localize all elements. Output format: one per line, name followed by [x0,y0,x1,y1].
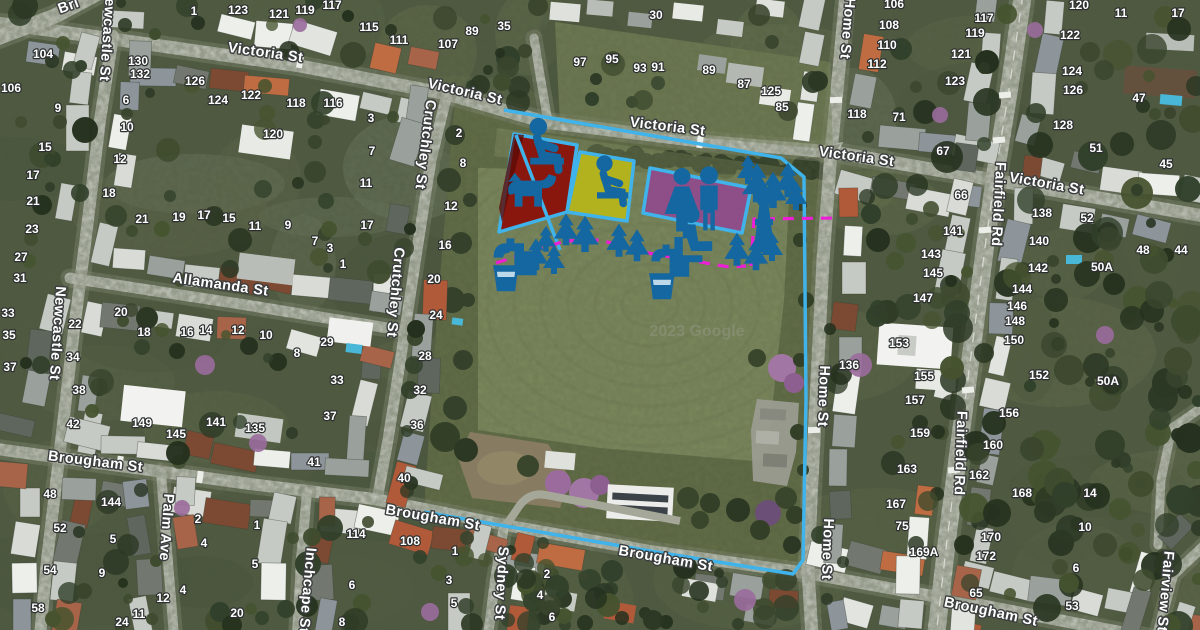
svg-text:21: 21 [135,212,149,226]
svg-text:7: 7 [312,234,319,248]
svg-text:71: 71 [892,110,906,124]
svg-text:30: 30 [649,8,663,22]
svg-text:20: 20 [114,305,128,319]
svg-text:17: 17 [197,208,211,222]
svg-text:106: 106 [884,0,904,11]
svg-text:5: 5 [110,532,117,546]
svg-text:143: 143 [921,247,941,261]
svg-text:11: 11 [249,219,262,233]
svg-text:17: 17 [360,218,374,232]
svg-text:163: 163 [897,462,917,476]
svg-text:33: 33 [1,306,15,320]
svg-text:24: 24 [429,308,443,322]
svg-text:40: 40 [397,471,411,485]
svg-text:108: 108 [400,534,420,548]
svg-text:12: 12 [444,199,458,213]
svg-text:44: 44 [1174,243,1188,257]
svg-text:149: 149 [132,416,152,430]
svg-text:6: 6 [1073,561,1080,575]
svg-text:147: 147 [913,291,933,305]
svg-text:35: 35 [497,19,511,33]
svg-text:124: 124 [1062,64,1082,78]
svg-text:11: 11 [133,607,146,621]
svg-text:11: 11 [360,176,373,190]
svg-text:21: 21 [26,194,40,208]
svg-text:153: 153 [889,336,909,350]
svg-text:8: 8 [460,156,467,170]
svg-text:169A: 169A [910,545,939,559]
svg-text:15: 15 [38,140,52,154]
svg-text:116: 116 [323,96,343,110]
svg-text:48: 48 [1136,243,1150,257]
svg-text:121: 121 [951,47,971,61]
svg-text:47: 47 [1132,91,1146,105]
svg-text:108: 108 [879,18,899,32]
svg-text:136: 136 [839,358,859,372]
svg-text:12: 12 [113,152,127,166]
svg-text:31: 31 [13,271,27,285]
svg-text:144: 144 [101,495,121,509]
svg-text:3: 3 [327,241,334,255]
svg-text:65: 65 [969,586,983,600]
svg-text:20: 20 [427,272,441,286]
svg-text:8: 8 [294,346,301,360]
svg-text:123: 123 [945,74,965,88]
svg-text:15: 15 [222,211,236,225]
svg-text:122: 122 [241,88,261,102]
svg-text:91: 91 [651,60,665,74]
svg-text:54: 54 [43,563,57,577]
svg-text:141: 141 [206,415,226,429]
svg-text:142: 142 [1028,261,1048,275]
svg-text:50A: 50A [1097,374,1119,388]
svg-text:157: 157 [905,393,925,407]
svg-text:35: 35 [2,328,16,342]
svg-text:110: 110 [877,38,897,52]
svg-text:123: 123 [228,3,248,17]
svg-text:140: 140 [1029,234,1049,248]
svg-text:107: 107 [438,37,458,51]
svg-text:48: 48 [43,487,57,501]
svg-text:172: 172 [976,549,996,563]
svg-text:114: 114 [346,527,366,541]
svg-text:34: 34 [66,350,80,364]
svg-text:115: 115 [359,20,379,34]
svg-text:8: 8 [339,615,346,629]
svg-text:Fairfield Rd: Fairfield Rd [951,411,970,496]
svg-text:145: 145 [923,266,943,280]
svg-text:10: 10 [120,120,134,134]
svg-text:132: 132 [130,67,150,81]
svg-text:89: 89 [702,63,716,77]
svg-text:104: 104 [33,47,53,61]
svg-text:4: 4 [201,536,208,550]
svg-text:9: 9 [285,218,292,232]
svg-text:159: 159 [910,426,930,440]
svg-text:42: 42 [66,417,80,431]
svg-text:148: 148 [1005,314,1025,328]
svg-text:29: 29 [320,335,334,349]
svg-text:135: 135 [245,421,265,435]
svg-text:24: 24 [115,615,129,629]
svg-text:1: 1 [452,544,459,558]
svg-text:28: 28 [418,349,432,363]
svg-text:167: 167 [886,497,906,511]
svg-text:4: 4 [180,583,187,597]
svg-text:6: 6 [123,93,130,107]
svg-text:2023 Google: 2023 Google [649,323,744,340]
svg-text:118: 118 [847,107,867,121]
svg-text:66: 66 [954,188,968,202]
svg-text:126: 126 [185,74,205,88]
svg-text:12: 12 [231,323,245,337]
svg-text:52: 52 [1080,211,1094,225]
svg-text:32: 32 [413,383,427,397]
svg-text:138: 138 [1032,206,1052,220]
svg-text:9: 9 [99,566,106,580]
svg-text:75: 75 [895,519,909,533]
svg-text:146: 146 [1007,299,1027,313]
svg-text:58: 58 [31,601,45,615]
svg-text:Home St: Home St [818,518,836,580]
svg-text:156: 156 [999,406,1019,420]
svg-text:14: 14 [199,323,213,337]
svg-text:37: 37 [323,409,337,423]
svg-text:85: 85 [775,100,789,114]
svg-text:9: 9 [55,101,62,115]
svg-text:144: 144 [1012,282,1032,296]
svg-text:2: 2 [456,126,463,140]
svg-text:50A: 50A [1091,260,1113,274]
svg-text:162: 162 [969,468,989,482]
svg-text:122: 122 [1060,28,1080,42]
svg-text:7: 7 [369,144,376,158]
svg-text:141: 141 [943,224,963,238]
svg-text:16: 16 [438,238,452,252]
svg-text:106: 106 [1,81,21,95]
svg-text:124: 124 [208,93,228,107]
svg-text:93: 93 [633,61,647,75]
svg-text:119: 119 [965,26,985,40]
svg-text:126: 126 [1063,83,1083,97]
svg-text:22: 22 [68,317,82,331]
svg-text:111: 111 [390,33,409,47]
svg-text:33: 33 [330,373,344,387]
svg-text:23: 23 [25,222,39,236]
svg-text:145: 145 [166,427,186,441]
svg-text:41: 41 [307,455,321,469]
svg-text:53: 53 [1065,599,1079,613]
svg-text:120: 120 [263,127,283,141]
svg-text:1: 1 [340,257,347,271]
svg-text:112: 112 [867,57,887,71]
svg-text:125: 125 [761,84,781,98]
svg-text:130: 130 [128,54,148,68]
svg-text:170: 170 [981,530,1001,544]
svg-text:155: 155 [914,369,934,383]
svg-text:18: 18 [137,325,151,339]
svg-text:14: 14 [1083,486,1097,500]
svg-text:119: 119 [295,3,315,17]
svg-text:17: 17 [1171,6,1185,20]
svg-text:1: 1 [254,518,261,532]
svg-text:4: 4 [537,588,544,602]
svg-text:38: 38 [72,383,86,397]
svg-text:19: 19 [172,210,186,224]
svg-text:168: 168 [1012,486,1032,500]
svg-text:20: 20 [230,606,244,620]
svg-text:11: 11 [1115,6,1128,20]
svg-text:37: 37 [3,360,17,374]
svg-text:51: 51 [1089,141,1103,155]
svg-text:152: 152 [1029,368,1049,382]
svg-text:18: 18 [102,186,116,200]
svg-text:10: 10 [1078,520,1092,534]
svg-text:45: 45 [1159,157,1173,171]
svg-text:6: 6 [349,578,356,592]
svg-text:118: 118 [286,96,306,110]
svg-text:97: 97 [573,55,587,69]
svg-text:5: 5 [252,557,259,571]
svg-text:1: 1 [191,4,198,18]
svg-text:27: 27 [14,250,28,264]
svg-text:6: 6 [549,610,556,624]
svg-text:160: 160 [983,438,1003,452]
svg-text:52: 52 [53,521,67,535]
svg-text:67: 67 [936,144,950,158]
svg-text:17: 17 [26,168,40,182]
svg-text:2: 2 [544,567,551,581]
svg-text:87: 87 [737,77,751,91]
svg-text:95: 95 [605,52,619,66]
svg-text:3: 3 [368,111,375,125]
svg-text:150: 150 [1004,333,1024,347]
svg-text:128: 128 [1053,118,1073,132]
svg-text:10: 10 [259,328,273,342]
svg-text:117: 117 [974,11,994,25]
svg-text:89: 89 [465,24,479,38]
svg-text:12: 12 [156,591,170,605]
svg-text:2: 2 [195,512,202,526]
svg-text:16: 16 [180,325,194,339]
svg-text:120: 120 [1069,0,1089,12]
svg-text:117: 117 [322,0,342,12]
svg-text:5: 5 [451,596,458,610]
svg-text:36: 36 [410,418,424,432]
svg-text:3: 3 [446,573,453,587]
svg-text:Home St: Home St [814,365,832,427]
svg-text:121: 121 [269,7,289,21]
